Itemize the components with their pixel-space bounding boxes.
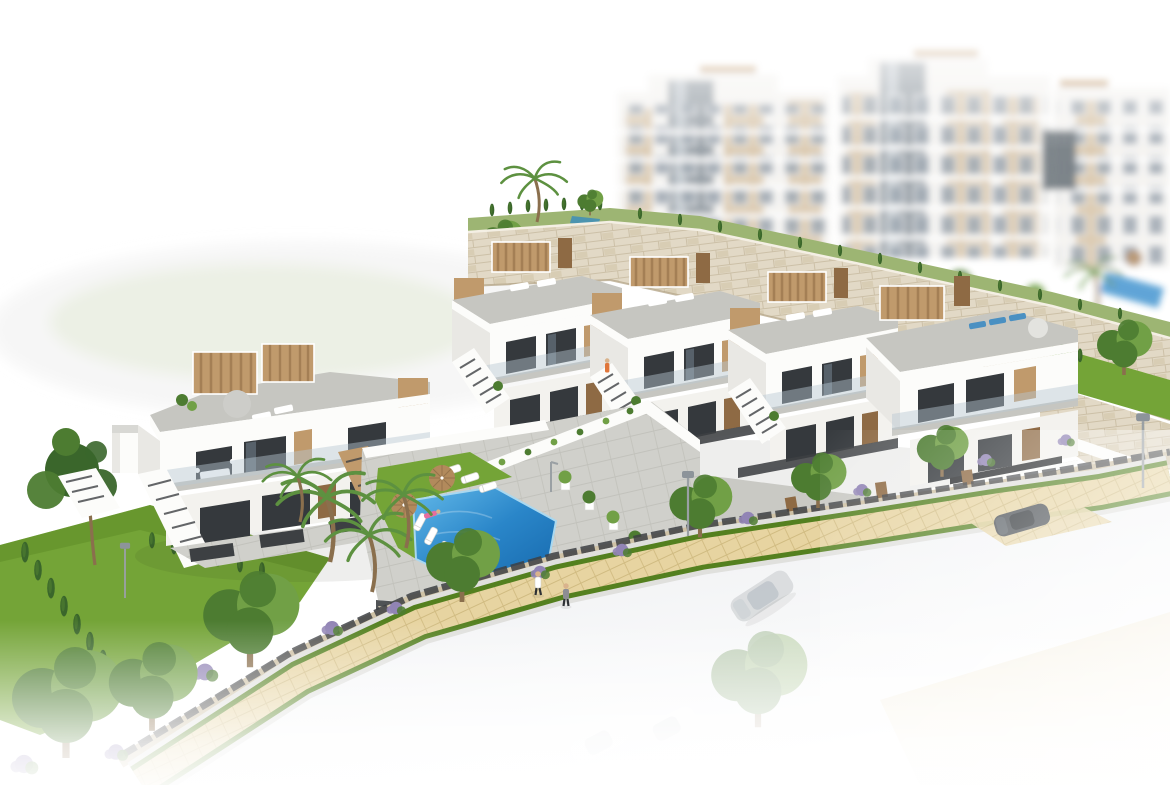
pool-umbrella-2 bbox=[429, 465, 455, 491]
corner-fade bbox=[820, 430, 1170, 785]
background-fade bbox=[585, 0, 1170, 150]
roof-parasol bbox=[1028, 318, 1048, 338]
render-canvas: Aerial 3D render of a hillside residenti… bbox=[0, 0, 1170, 785]
person-on-balcony bbox=[605, 358, 610, 372]
architectural-render: Aerial 3D render of a hillside residenti… bbox=[0, 0, 1170, 785]
roof-parasol-gray bbox=[223, 390, 251, 418]
